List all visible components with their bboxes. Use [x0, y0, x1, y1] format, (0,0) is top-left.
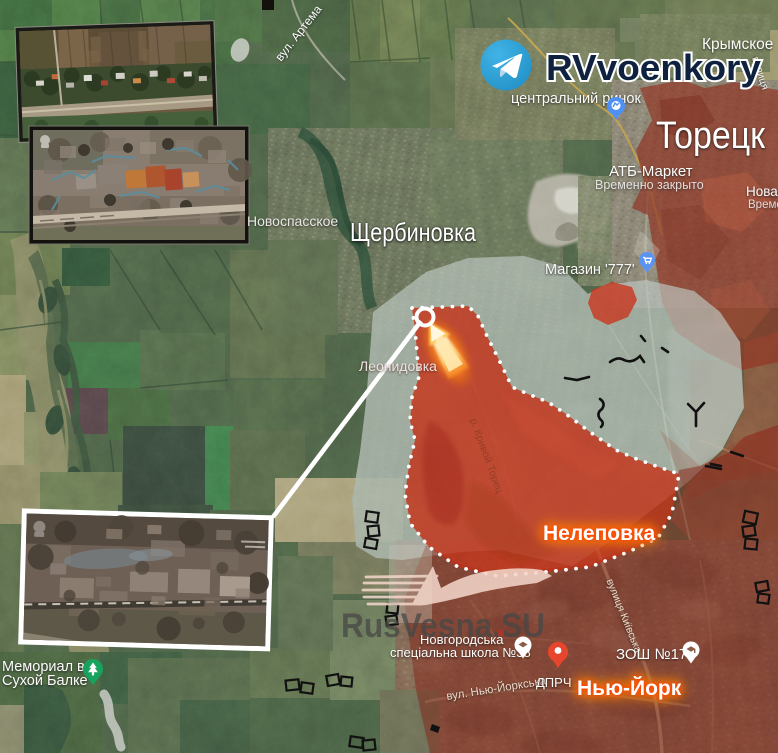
svg-text:Новоспасское: Новоспасское	[247, 213, 338, 229]
svg-text:Временно закрыто: Временно закрыто	[595, 178, 704, 192]
svg-text:Нью-Йорк: Нью-Йорк	[577, 676, 682, 700]
svg-text:спеціальна школа №38: спеціальна школа №38	[390, 645, 531, 660]
svg-text:Нова: Нова	[746, 184, 778, 199]
svg-text:Торецк: Торецк	[656, 115, 765, 157]
svg-text:ЗОШ №17: ЗОШ №17	[616, 646, 687, 663]
svg-text:ДПРЧ: ДПРЧ	[536, 675, 571, 690]
svg-text:Време: Време	[748, 199, 778, 211]
svg-text:Магазин '777': Магазин '777'	[545, 262, 635, 278]
svg-text:Леонидовка: Леонидовка	[359, 358, 437, 374]
svg-text:Нелеповка: Нелеповка	[543, 522, 656, 545]
svg-text:RVvoenkory: RVvoenkory	[546, 47, 761, 88]
svg-text:Сухой Балке: Сухой Балке	[2, 673, 88, 689]
svg-text:RusVesna.SU: RusVesna.SU	[341, 607, 545, 645]
svg-text:Щербиновка: Щербиновка	[350, 217, 476, 247]
